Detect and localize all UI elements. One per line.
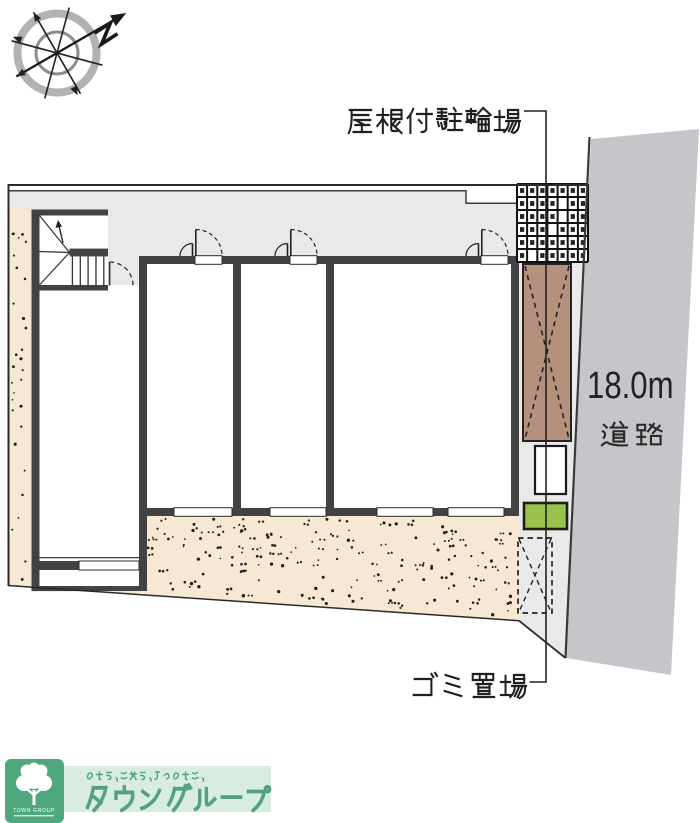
svg-text:18.0m: 18.0m xyxy=(587,365,674,407)
svg-text:TOWN GROUP: TOWN GROUP xyxy=(13,808,55,814)
